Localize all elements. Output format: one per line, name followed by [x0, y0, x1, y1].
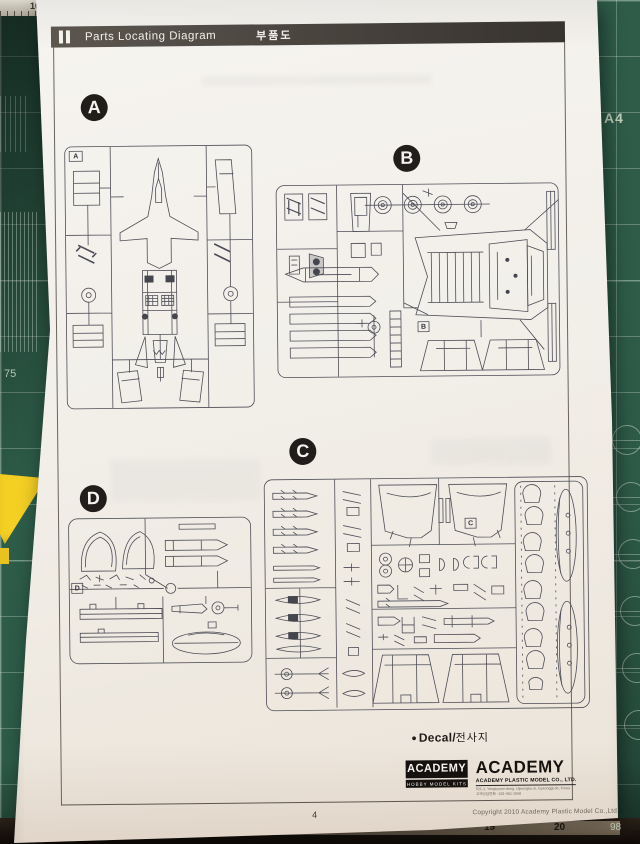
page-title-korean: 부품도	[256, 27, 293, 43]
academy-logo: ACADEMY ACADEMY PLASTIC MODEL CO., LTD. …	[476, 757, 576, 797]
academy-hobby-logo-name: ACADEMY	[406, 760, 468, 778]
sprue-a-tag: A	[69, 151, 82, 161]
header-accent-bar	[66, 30, 70, 43]
sprue-b-artwork	[275, 181, 562, 379]
academy-hobby-logo: ACADEMY HOBBY MODEL KITS	[406, 760, 468, 788]
decal-label-kr: 전사지	[456, 729, 490, 745]
sprue-d-label: D	[80, 485, 107, 512]
academy-wordmark: ACADEMY	[476, 757, 588, 778]
page-title: Parts Locating Diagram	[85, 29, 216, 42]
page-number: 4	[312, 810, 317, 820]
sprue-d-diagram: D	[67, 516, 254, 666]
sprue-c-tag: C	[465, 518, 476, 528]
instruction-sheet: Parts Locating Diagram 부품도 A B C D	[0, 0, 640, 844]
sprue-c-artwork	[263, 475, 591, 712]
bullet-icon: ●	[411, 733, 417, 743]
print-through-ghost	[430, 437, 550, 464]
sprue-d-tag: D	[72, 583, 83, 593]
sprue-a-artwork	[63, 143, 256, 410]
sprue-a-diagram: A	[63, 143, 256, 410]
decal-note: ● Decal / 전사지	[411, 729, 489, 746]
header-accent-bar	[59, 30, 63, 43]
sprue-c-diagram: C	[263, 475, 591, 712]
print-through-ghost	[201, 75, 431, 86]
page-header: Parts Locating Diagram 부품도	[51, 21, 565, 47]
page-content: Parts Locating Diagram 부품도 A B C D	[0, 0, 640, 844]
sprue-b-tag: B	[418, 322, 429, 332]
sprue-b-label: B	[393, 145, 420, 172]
academy-address-line2: 고객상담전화 : 031-901-1550	[476, 791, 576, 797]
copyright-text: Copyright 2010 Academy Plastic Model Co.…	[349, 808, 619, 818]
print-through-ghost	[110, 458, 260, 502]
academy-company-name: ACADEMY PLASTIC MODEL CO., LTD.	[476, 777, 576, 786]
mat-corner-label: 98	[610, 822, 621, 833]
paper-page: Parts Locating Diagram 부품도 A B C D	[0, 0, 640, 844]
decal-label-en: Decal	[419, 730, 453, 744]
page-frame-left	[53, 48, 62, 806]
page-frame-bottom	[61, 799, 573, 805]
sprue-c-label: C	[289, 438, 316, 465]
sprue-d-artwork	[67, 516, 254, 666]
academy-hobby-logo-subtitle: HOBBY MODEL KITS	[406, 779, 468, 788]
sprue-a-label: A	[81, 94, 108, 121]
sprue-b-diagram: B	[275, 181, 562, 379]
